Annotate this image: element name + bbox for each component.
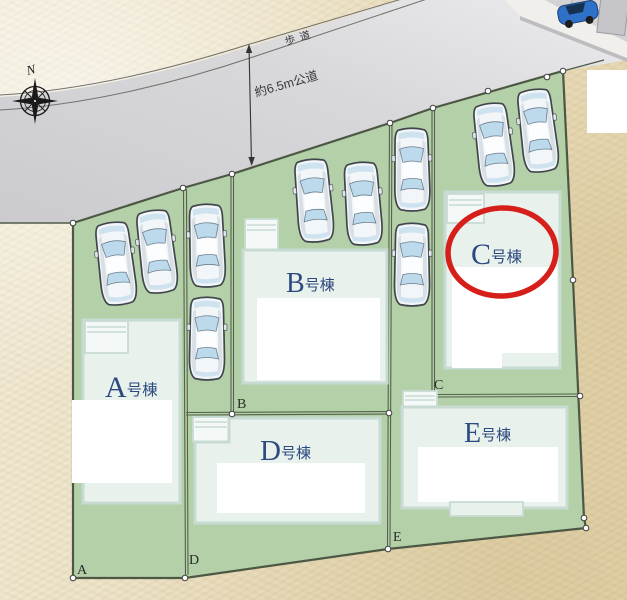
corner-label-A: A bbox=[77, 563, 88, 578]
corner-label-D: D bbox=[189, 553, 199, 568]
building-E: E号棟 bbox=[402, 391, 567, 516]
corner-label-B: B bbox=[237, 397, 246, 412]
car-icon bbox=[392, 223, 432, 306]
porch-B bbox=[245, 219, 278, 250]
corner-label-C: C bbox=[434, 378, 443, 393]
corner-label-E: E bbox=[393, 530, 402, 545]
car-icon bbox=[391, 128, 432, 211]
blank-label-box bbox=[587, 70, 627, 133]
porch-D bbox=[193, 417, 229, 442]
car-icon bbox=[187, 297, 227, 380]
porch-A bbox=[85, 321, 128, 353]
building-D: D号棟 bbox=[193, 417, 380, 523]
building-A: A号棟 bbox=[72, 320, 180, 503]
wall-block bbox=[597, 0, 627, 36]
compass-north-label: N bbox=[24, 61, 38, 78]
site-plan: 歩道 約6.5m公道 bbox=[0, 0, 627, 600]
car-icon bbox=[186, 204, 229, 288]
